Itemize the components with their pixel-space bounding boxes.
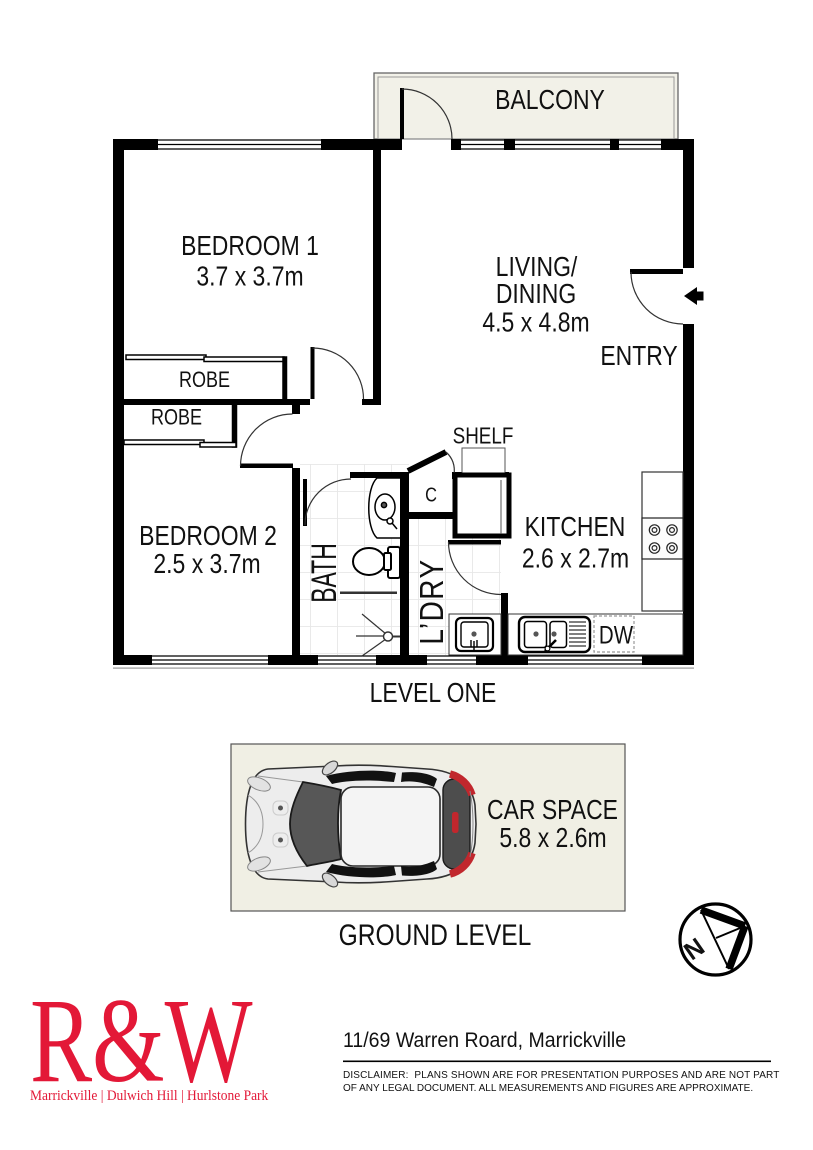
svg-text:LEVEL ONE: LEVEL ONE <box>370 678 497 709</box>
svg-text:5.8 x 2.6m: 5.8 x 2.6m <box>499 823 606 854</box>
svg-text:BATH: BATH <box>305 543 344 603</box>
svg-text:2.6 x 2.7m: 2.6 x 2.7m <box>522 543 629 574</box>
svg-text:ENTRY: ENTRY <box>600 341 677 372</box>
svg-text:BALCONY: BALCONY <box>495 85 605 116</box>
svg-text:3.7 x 3.7m: 3.7 x 3.7m <box>196 261 303 292</box>
svg-text:CAR SPACE: CAR SPACE <box>487 795 618 826</box>
svg-text:BEDROOM 1: BEDROOM 1 <box>181 231 319 262</box>
svg-text:Marrickville | Dulwich Hill |: Marrickville | Dulwich Hill | Hurlstone … <box>30 1087 269 1104</box>
svg-text:4.5 x 4.8m: 4.5 x 4.8m <box>482 307 589 338</box>
svg-text:11/69 Warren Roard, Marrickvil: 11/69 Warren Roard, Marrickville <box>343 1029 626 1052</box>
svg-text:ROBE: ROBE <box>179 368 230 392</box>
svg-text:GROUND LEVEL: GROUND LEVEL <box>339 918 532 952</box>
svg-text:L’DRY: L’DRY <box>413 558 451 644</box>
svg-text:DW: DW <box>599 621 634 649</box>
svg-text:BEDROOM 2: BEDROOM 2 <box>139 521 277 552</box>
svg-text:ROBE: ROBE <box>151 406 202 430</box>
svg-text:2.5 x 3.7m: 2.5 x 3.7m <box>153 549 260 580</box>
svg-text:DISCLAIMER: PLANS SHOWN ARE F: DISCLAIMER: PLANS SHOWN ARE FOR PRESENTA… <box>343 1070 779 1081</box>
svg-text:DINING: DINING <box>496 279 576 310</box>
svg-text:OF ANY LEGAL DOCUMENT. ALL MEA: OF ANY LEGAL DOCUMENT. ALL MEASUREMENTS … <box>343 1083 753 1094</box>
svg-text:KITCHEN: KITCHEN <box>525 512 626 543</box>
svg-text:C: C <box>425 483 437 506</box>
svg-text:SHELF: SHELF <box>453 424 514 449</box>
